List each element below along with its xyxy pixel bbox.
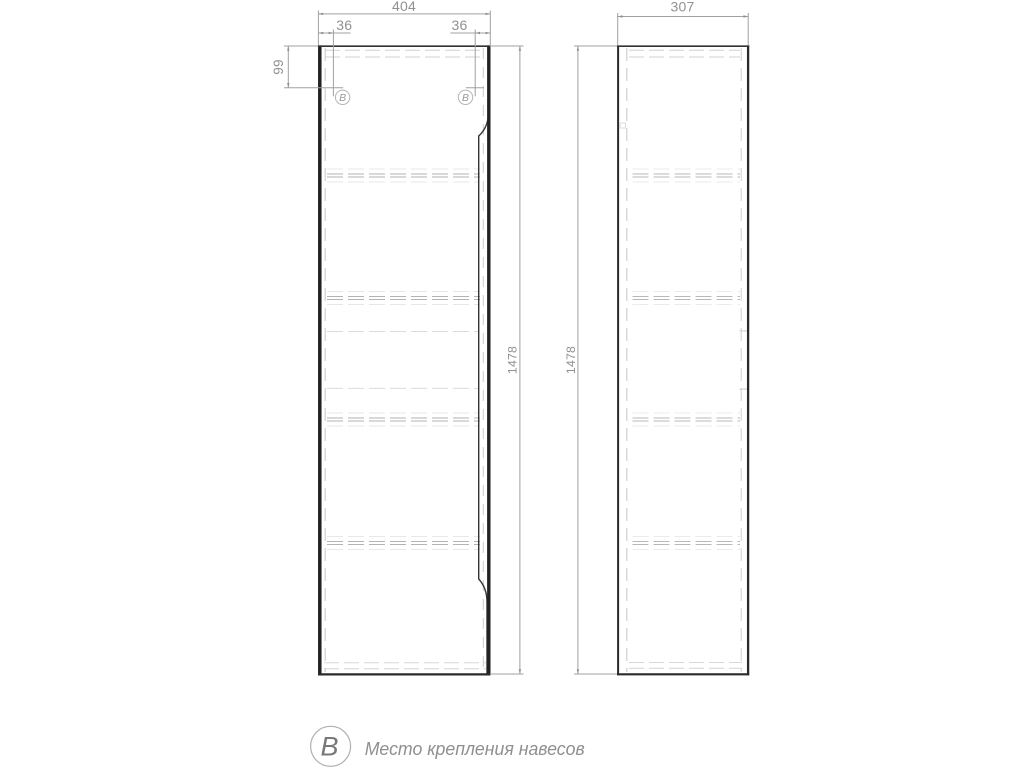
svg-text:B: B (462, 92, 469, 104)
svg-text:404: 404 (392, 0, 416, 14)
svg-text:99: 99 (271, 59, 286, 74)
svg-text:Место крепления навесов: Место крепления навесов (365, 739, 585, 759)
svg-text:307: 307 (671, 0, 695, 15)
svg-text:36: 36 (336, 17, 352, 33)
svg-text:36: 36 (452, 17, 468, 33)
svg-text:B: B (339, 92, 346, 104)
svg-text:1478: 1478 (564, 346, 578, 374)
svg-text:1478: 1478 (506, 346, 520, 374)
svg-text:B: B (320, 732, 338, 762)
